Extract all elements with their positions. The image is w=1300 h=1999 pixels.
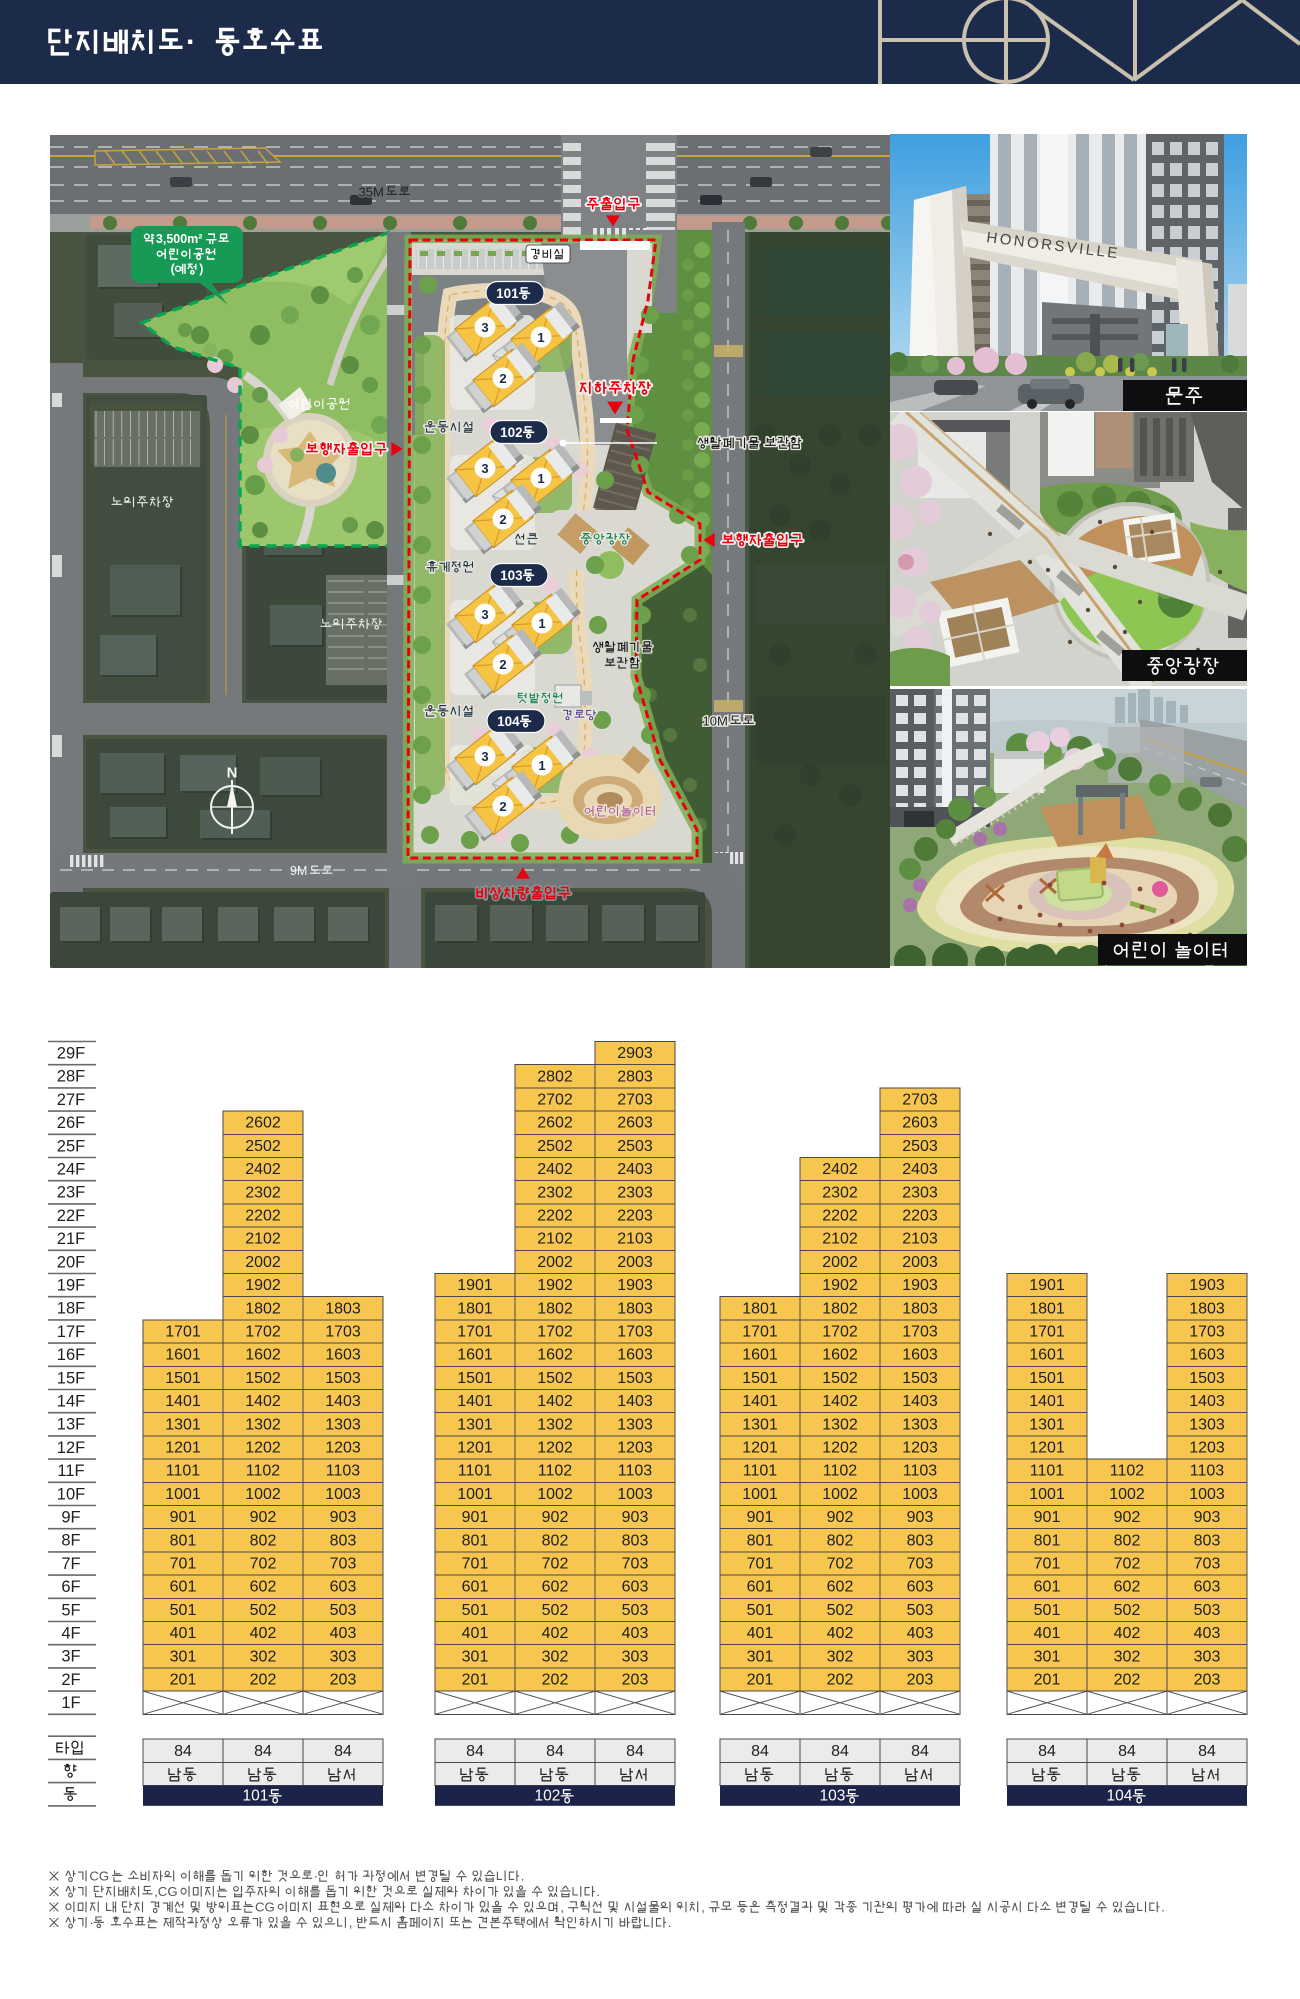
- svg-text:1703: 1703: [325, 1324, 361, 1341]
- svg-text:1101: 1101: [166, 1463, 201, 1480]
- svg-text:902: 902: [250, 1509, 277, 1526]
- svg-text:84: 84: [751, 1743, 769, 1760]
- svg-text:403: 403: [907, 1625, 934, 1642]
- svg-text:1301: 1301: [165, 1416, 201, 1433]
- svg-text:1703: 1703: [617, 1324, 653, 1341]
- svg-text:5F: 5F: [61, 1601, 80, 1619]
- svg-text:1803: 1803: [617, 1300, 653, 1317]
- svg-text:602: 602: [1114, 1579, 1141, 1596]
- svg-text:2602: 2602: [245, 1115, 281, 1132]
- svg-text:84: 84: [626, 1743, 644, 1760]
- svg-text:901: 901: [747, 1509, 774, 1526]
- svg-text:201: 201: [170, 1672, 197, 1689]
- svg-text:803: 803: [1194, 1532, 1221, 1549]
- svg-text:1801: 1801: [457, 1300, 493, 1317]
- svg-text:2802: 2802: [537, 1068, 573, 1085]
- svg-text:2002: 2002: [245, 1254, 281, 1271]
- svg-text:1403: 1403: [902, 1393, 938, 1410]
- svg-text:1302: 1302: [822, 1416, 858, 1433]
- svg-text:1903: 1903: [617, 1277, 653, 1294]
- svg-text:2803: 2803: [617, 1068, 653, 1085]
- svg-text:1303: 1303: [1189, 1416, 1225, 1433]
- svg-text:202: 202: [542, 1672, 569, 1689]
- svg-text:901: 901: [1034, 1509, 1061, 1526]
- svg-text:1003: 1003: [902, 1486, 938, 1503]
- svg-text:1403: 1403: [617, 1393, 653, 1410]
- svg-text:84: 84: [466, 1743, 484, 1760]
- svg-text:202: 202: [827, 1672, 854, 1689]
- svg-text:1202: 1202: [245, 1440, 281, 1457]
- svg-text:1001: 1001: [457, 1486, 493, 1503]
- svg-text:503: 503: [622, 1602, 649, 1619]
- svg-text:27F: 27F: [57, 1091, 85, 1109]
- svg-text:701: 701: [462, 1556, 489, 1573]
- svg-text:403: 403: [330, 1625, 357, 1642]
- svg-text:1601: 1601: [165, 1347, 201, 1364]
- svg-text:702: 702: [250, 1556, 277, 1573]
- svg-text:1203: 1203: [617, 1440, 653, 1457]
- svg-text:1201: 1201: [742, 1440, 778, 1457]
- svg-text:303: 303: [1194, 1648, 1221, 1665]
- svg-text:2603: 2603: [902, 1115, 938, 1132]
- svg-text:2402: 2402: [537, 1161, 573, 1178]
- svg-text:1401: 1401: [742, 1393, 778, 1410]
- svg-text:84: 84: [174, 1743, 192, 1760]
- svg-text:903: 903: [622, 1509, 649, 1526]
- svg-text:CG: CG: [255, 1900, 275, 1915]
- svg-text:203: 203: [907, 1672, 934, 1689]
- svg-text:1602: 1602: [822, 1347, 858, 1364]
- svg-text:2202: 2202: [822, 1208, 858, 1225]
- svg-text:·: ·: [314, 1869, 318, 1884]
- svg-text:903: 903: [907, 1509, 934, 1526]
- svg-text:202: 202: [250, 1672, 277, 1689]
- svg-text:1603: 1603: [617, 1347, 653, 1364]
- svg-text:1401: 1401: [165, 1393, 201, 1410]
- svg-text:501: 501: [1034, 1602, 1061, 1619]
- svg-text:2703: 2703: [902, 1092, 938, 1109]
- svg-text:1603: 1603: [325, 1347, 361, 1364]
- svg-text:2F: 2F: [61, 1671, 80, 1689]
- svg-text:1902: 1902: [245, 1277, 281, 1294]
- svg-text:·: ·: [89, 1915, 93, 1930]
- svg-text:1701: 1701: [165, 1324, 201, 1341]
- svg-text:1803: 1803: [902, 1300, 938, 1317]
- svg-text:403: 403: [622, 1625, 649, 1642]
- svg-text:202: 202: [1114, 1672, 1141, 1689]
- svg-text:1001: 1001: [1029, 1486, 1065, 1503]
- svg-text:1702: 1702: [537, 1324, 573, 1341]
- svg-text:1201: 1201: [1029, 1440, 1065, 1457]
- svg-text:1301: 1301: [457, 1416, 493, 1433]
- svg-text:203: 203: [622, 1672, 649, 1689]
- svg-text:2102: 2102: [245, 1231, 281, 1248]
- svg-text:603: 603: [622, 1579, 649, 1596]
- svg-text:1101: 1101: [1030, 1463, 1065, 1480]
- svg-text:14F: 14F: [57, 1393, 85, 1411]
- svg-text:903: 903: [1194, 1509, 1221, 1526]
- svg-text:2103: 2103: [902, 1231, 938, 1248]
- svg-text:302: 302: [542, 1648, 569, 1665]
- svg-text:1601: 1601: [457, 1347, 493, 1364]
- svg-text:301: 301: [170, 1648, 197, 1665]
- svg-text:901: 901: [462, 1509, 489, 1526]
- svg-text:902: 902: [1114, 1509, 1141, 1526]
- svg-text:CG: CG: [158, 1884, 178, 1899]
- svg-text:1302: 1302: [245, 1416, 281, 1433]
- svg-text:301: 301: [462, 1648, 489, 1665]
- svg-text:1503: 1503: [617, 1370, 653, 1387]
- svg-text:602: 602: [542, 1579, 569, 1596]
- svg-text:2503: 2503: [902, 1138, 938, 1155]
- svg-text:1601: 1601: [1029, 1347, 1065, 1364]
- svg-text:1103: 1103: [326, 1463, 361, 1480]
- svg-text:2203: 2203: [617, 1208, 653, 1225]
- svg-text:21F: 21F: [57, 1230, 85, 1248]
- svg-text:501: 501: [170, 1602, 197, 1619]
- svg-text:1801: 1801: [742, 1300, 778, 1317]
- svg-text:.: .: [521, 1869, 525, 1884]
- svg-text:18F: 18F: [57, 1300, 85, 1318]
- svg-text:2502: 2502: [537, 1138, 573, 1155]
- svg-text:802: 802: [542, 1532, 569, 1549]
- svg-text:1503: 1503: [1189, 1370, 1225, 1387]
- svg-text:301: 301: [747, 1648, 774, 1665]
- svg-text:301: 301: [1034, 1648, 1061, 1665]
- svg-text:1501: 1501: [742, 1370, 778, 1387]
- svg-text:2002: 2002: [537, 1254, 573, 1271]
- svg-text:803: 803: [622, 1532, 649, 1549]
- svg-text:1503: 1503: [902, 1370, 938, 1387]
- svg-text:1F: 1F: [61, 1694, 80, 1712]
- svg-text:603: 603: [1194, 1579, 1221, 1596]
- svg-text:1203: 1203: [902, 1440, 938, 1457]
- svg-text:4F: 4F: [61, 1625, 80, 1643]
- svg-text:801: 801: [170, 1532, 197, 1549]
- svg-text:402: 402: [542, 1625, 569, 1642]
- svg-text:2203: 2203: [902, 1208, 938, 1225]
- svg-text:101: 101: [243, 1788, 269, 1805]
- svg-text:1102: 1102: [246, 1463, 281, 1480]
- svg-text:17F: 17F: [57, 1323, 85, 1341]
- svg-text:701: 701: [747, 1556, 774, 1573]
- svg-text:902: 902: [542, 1509, 569, 1526]
- svg-text:25F: 25F: [57, 1137, 85, 1155]
- svg-text:2103: 2103: [617, 1231, 653, 1248]
- svg-text:302: 302: [250, 1648, 277, 1665]
- svg-text:1603: 1603: [902, 1347, 938, 1364]
- svg-text:,: ,: [701, 1900, 705, 1915]
- svg-text:201: 201: [462, 1672, 489, 1689]
- svg-text:1101: 1101: [458, 1463, 493, 1480]
- svg-text:1902: 1902: [537, 1277, 573, 1294]
- svg-text:.: .: [1161, 1900, 1165, 1915]
- svg-text:.: .: [596, 1884, 600, 1899]
- svg-text:1003: 1003: [1189, 1486, 1225, 1503]
- svg-text:1102: 1102: [1110, 1463, 1145, 1480]
- svg-text:302: 302: [827, 1648, 854, 1665]
- svg-text:2402: 2402: [822, 1161, 858, 1178]
- svg-text:1902: 1902: [822, 1277, 858, 1294]
- svg-text:1702: 1702: [822, 1324, 858, 1341]
- svg-text:16F: 16F: [57, 1346, 85, 1364]
- svg-text:13F: 13F: [57, 1416, 85, 1434]
- svg-text:2302: 2302: [537, 1184, 573, 1201]
- svg-text:2202: 2202: [537, 1208, 573, 1225]
- svg-text:502: 502: [542, 1602, 569, 1619]
- svg-text:802: 802: [1114, 1532, 1141, 1549]
- svg-text:903: 903: [330, 1509, 357, 1526]
- svg-text:703: 703: [907, 1556, 934, 1573]
- svg-text:801: 801: [462, 1532, 489, 1549]
- svg-text:902: 902: [827, 1509, 854, 1526]
- svg-text:1103: 1103: [1190, 1463, 1225, 1480]
- svg-text:1402: 1402: [822, 1393, 858, 1410]
- svg-text:2303: 2303: [617, 1184, 653, 1201]
- svg-text:,: ,: [560, 1900, 564, 1915]
- svg-text:1203: 1203: [325, 1440, 361, 1457]
- svg-text:84: 84: [1118, 1743, 1136, 1760]
- svg-text:403: 403: [1194, 1625, 1221, 1642]
- svg-text:1003: 1003: [325, 1486, 361, 1503]
- svg-text:801: 801: [747, 1532, 774, 1549]
- svg-text:901: 901: [170, 1509, 197, 1526]
- svg-text:603: 603: [907, 1579, 934, 1596]
- svg-text:1502: 1502: [245, 1370, 281, 1387]
- svg-text:702: 702: [1114, 1556, 1141, 1573]
- svg-text:702: 702: [827, 1556, 854, 1573]
- svg-text:2603: 2603: [617, 1115, 653, 1132]
- svg-text:502: 502: [250, 1602, 277, 1619]
- svg-text:1701: 1701: [1029, 1324, 1065, 1341]
- svg-text:703: 703: [330, 1556, 357, 1573]
- svg-text:15F: 15F: [57, 1369, 85, 1387]
- svg-text:2502: 2502: [245, 1138, 281, 1155]
- svg-text:1103: 1103: [903, 1463, 938, 1480]
- svg-text:1003: 1003: [617, 1486, 653, 1503]
- svg-text:103: 103: [820, 1788, 846, 1805]
- svg-text:8F: 8F: [61, 1532, 80, 1550]
- svg-text:1101: 1101: [743, 1463, 778, 1480]
- svg-text:503: 503: [330, 1602, 357, 1619]
- svg-text:303: 303: [622, 1648, 649, 1665]
- svg-text:1503: 1503: [325, 1370, 361, 1387]
- svg-text:1602: 1602: [537, 1347, 573, 1364]
- svg-text:1501: 1501: [1029, 1370, 1065, 1387]
- svg-text:2602: 2602: [537, 1115, 573, 1132]
- svg-text:28F: 28F: [57, 1068, 85, 1086]
- svg-text:2403: 2403: [617, 1161, 653, 1178]
- svg-text:1001: 1001: [165, 1486, 201, 1503]
- svg-text:1303: 1303: [902, 1416, 938, 1433]
- svg-text:2002: 2002: [822, 1254, 858, 1271]
- svg-text:84: 84: [546, 1743, 564, 1760]
- svg-text:2302: 2302: [245, 1184, 281, 1201]
- svg-text:29F: 29F: [57, 1045, 85, 1063]
- svg-text:19F: 19F: [57, 1277, 85, 1295]
- svg-text:802: 802: [827, 1532, 854, 1549]
- svg-text:1001: 1001: [742, 1486, 778, 1503]
- svg-text:1603: 1603: [1189, 1347, 1225, 1364]
- svg-text:2102: 2102: [822, 1231, 858, 1248]
- svg-text:1203: 1203: [1189, 1440, 1225, 1457]
- svg-text:1401: 1401: [1029, 1393, 1065, 1410]
- svg-text:1002: 1002: [1109, 1486, 1145, 1503]
- svg-text:1303: 1303: [325, 1416, 361, 1433]
- svg-text:1903: 1903: [902, 1277, 938, 1294]
- svg-text:703: 703: [1194, 1556, 1221, 1573]
- svg-text:803: 803: [907, 1532, 934, 1549]
- svg-text:84: 84: [254, 1743, 272, 1760]
- svg-text:23F: 23F: [57, 1184, 85, 1202]
- svg-text:502: 502: [1114, 1602, 1141, 1619]
- svg-text:1201: 1201: [457, 1440, 493, 1457]
- svg-text:501: 501: [462, 1602, 489, 1619]
- svg-text:1403: 1403: [325, 1393, 361, 1410]
- svg-text:402: 402: [827, 1625, 854, 1642]
- svg-text:84: 84: [1038, 1743, 1056, 1760]
- svg-text:12F: 12F: [57, 1439, 85, 1457]
- svg-text:84: 84: [911, 1743, 929, 1760]
- svg-text:2703: 2703: [617, 1092, 653, 1109]
- svg-text:1803: 1803: [325, 1300, 361, 1317]
- svg-text:401: 401: [1034, 1625, 1061, 1642]
- svg-text:6F: 6F: [61, 1578, 80, 1596]
- svg-text:1402: 1402: [245, 1393, 281, 1410]
- svg-text:1402: 1402: [537, 1393, 573, 1410]
- svg-text:2503: 2503: [617, 1138, 653, 1155]
- svg-text:1501: 1501: [165, 1370, 201, 1387]
- svg-text:1201: 1201: [165, 1440, 201, 1457]
- svg-text:601: 601: [462, 1579, 489, 1596]
- svg-text:2702: 2702: [537, 1092, 573, 1109]
- svg-text:1502: 1502: [822, 1370, 858, 1387]
- svg-text:601: 601: [747, 1579, 774, 1596]
- svg-text:1501: 1501: [457, 1370, 493, 1387]
- svg-text:1002: 1002: [822, 1486, 858, 1503]
- svg-text:402: 402: [250, 1625, 277, 1642]
- svg-text:201: 201: [747, 1672, 774, 1689]
- svg-text:201: 201: [1034, 1672, 1061, 1689]
- svg-text:1302: 1302: [537, 1416, 573, 1433]
- svg-text:802: 802: [250, 1532, 277, 1549]
- svg-text:702: 702: [542, 1556, 569, 1573]
- svg-text:701: 701: [1034, 1556, 1061, 1573]
- svg-text:7F: 7F: [61, 1555, 80, 1573]
- svg-text:601: 601: [1034, 1579, 1061, 1596]
- svg-text:1801: 1801: [1029, 1300, 1065, 1317]
- svg-text:1301: 1301: [1029, 1416, 1065, 1433]
- svg-text:1802: 1802: [537, 1300, 573, 1317]
- svg-text:2003: 2003: [617, 1254, 653, 1271]
- svg-text:303: 303: [907, 1648, 934, 1665]
- svg-text:2202: 2202: [245, 1208, 281, 1225]
- svg-text:1403: 1403: [1189, 1393, 1225, 1410]
- svg-text:2003: 2003: [902, 1254, 938, 1271]
- svg-text:203: 203: [330, 1672, 357, 1689]
- svg-text:1802: 1802: [822, 1300, 858, 1317]
- svg-text:2402: 2402: [245, 1161, 281, 1178]
- svg-text:1702: 1702: [245, 1324, 281, 1341]
- svg-text:84: 84: [831, 1743, 849, 1760]
- svg-text:1701: 1701: [457, 1324, 493, 1341]
- svg-text:2303: 2303: [902, 1184, 938, 1201]
- svg-text:503: 503: [1194, 1602, 1221, 1619]
- svg-text:603: 603: [330, 1579, 357, 1596]
- svg-text:1803: 1803: [1189, 1300, 1225, 1317]
- svg-text:2903: 2903: [617, 1045, 653, 1062]
- svg-text:401: 401: [747, 1625, 774, 1642]
- svg-text:801: 801: [1034, 1532, 1061, 1549]
- svg-text:803: 803: [330, 1532, 357, 1549]
- svg-text:2302: 2302: [822, 1184, 858, 1201]
- svg-text:1502: 1502: [537, 1370, 573, 1387]
- svg-text:602: 602: [250, 1579, 277, 1596]
- svg-text:,: ,: [349, 1915, 353, 1930]
- svg-text:602: 602: [827, 1579, 854, 1596]
- svg-text:84: 84: [334, 1743, 352, 1760]
- svg-text:26F: 26F: [57, 1114, 85, 1132]
- svg-text:3F: 3F: [61, 1648, 80, 1666]
- svg-text:401: 401: [170, 1625, 197, 1642]
- svg-text:1901: 1901: [1029, 1277, 1065, 1294]
- svg-text:1102: 1102: [538, 1463, 573, 1480]
- svg-text:1703: 1703: [1189, 1324, 1225, 1341]
- svg-text:9F: 9F: [61, 1509, 80, 1527]
- svg-text:703: 703: [622, 1556, 649, 1573]
- svg-text:1301: 1301: [742, 1416, 778, 1433]
- svg-text:601: 601: [170, 1579, 197, 1596]
- svg-text:22F: 22F: [57, 1207, 85, 1225]
- svg-text:2102: 2102: [537, 1231, 573, 1248]
- svg-text:1002: 1002: [245, 1486, 281, 1503]
- svg-text:302: 302: [1114, 1648, 1141, 1665]
- svg-text:401: 401: [462, 1625, 489, 1642]
- svg-text:1703: 1703: [902, 1324, 938, 1341]
- svg-text:503: 503: [907, 1602, 934, 1619]
- svg-text:1102: 1102: [823, 1463, 858, 1480]
- svg-text:1802: 1802: [245, 1300, 281, 1317]
- svg-text:10F: 10F: [57, 1485, 85, 1503]
- svg-text:1002: 1002: [537, 1486, 573, 1503]
- svg-text:1903: 1903: [1189, 1277, 1225, 1294]
- svg-text:1202: 1202: [822, 1440, 858, 1457]
- svg-text:84: 84: [1198, 1743, 1216, 1760]
- svg-text:CG: CG: [89, 1869, 109, 1884]
- svg-text:1602: 1602: [245, 1347, 281, 1364]
- svg-text:2403: 2403: [902, 1161, 938, 1178]
- svg-text:1303: 1303: [617, 1416, 653, 1433]
- svg-text:1901: 1901: [457, 1277, 493, 1294]
- svg-text:501: 501: [747, 1602, 774, 1619]
- svg-text:402: 402: [1114, 1625, 1141, 1642]
- svg-text:203: 203: [1194, 1672, 1221, 1689]
- svg-text:1103: 1103: [618, 1463, 653, 1480]
- svg-text:104: 104: [1107, 1788, 1133, 1805]
- svg-text:1601: 1601: [742, 1347, 778, 1364]
- svg-text:20F: 20F: [57, 1253, 85, 1271]
- svg-text:24F: 24F: [57, 1161, 85, 1179]
- svg-text:11F: 11F: [57, 1462, 84, 1480]
- svg-text:102: 102: [535, 1788, 561, 1805]
- svg-text:1401: 1401: [457, 1393, 493, 1410]
- svg-text:1202: 1202: [537, 1440, 573, 1457]
- svg-text:701: 701: [170, 1556, 197, 1573]
- svg-text:502: 502: [827, 1602, 854, 1619]
- svg-text:303: 303: [330, 1648, 357, 1665]
- svg-text:1701: 1701: [742, 1324, 778, 1341]
- svg-text:.: .: [668, 1915, 672, 1930]
